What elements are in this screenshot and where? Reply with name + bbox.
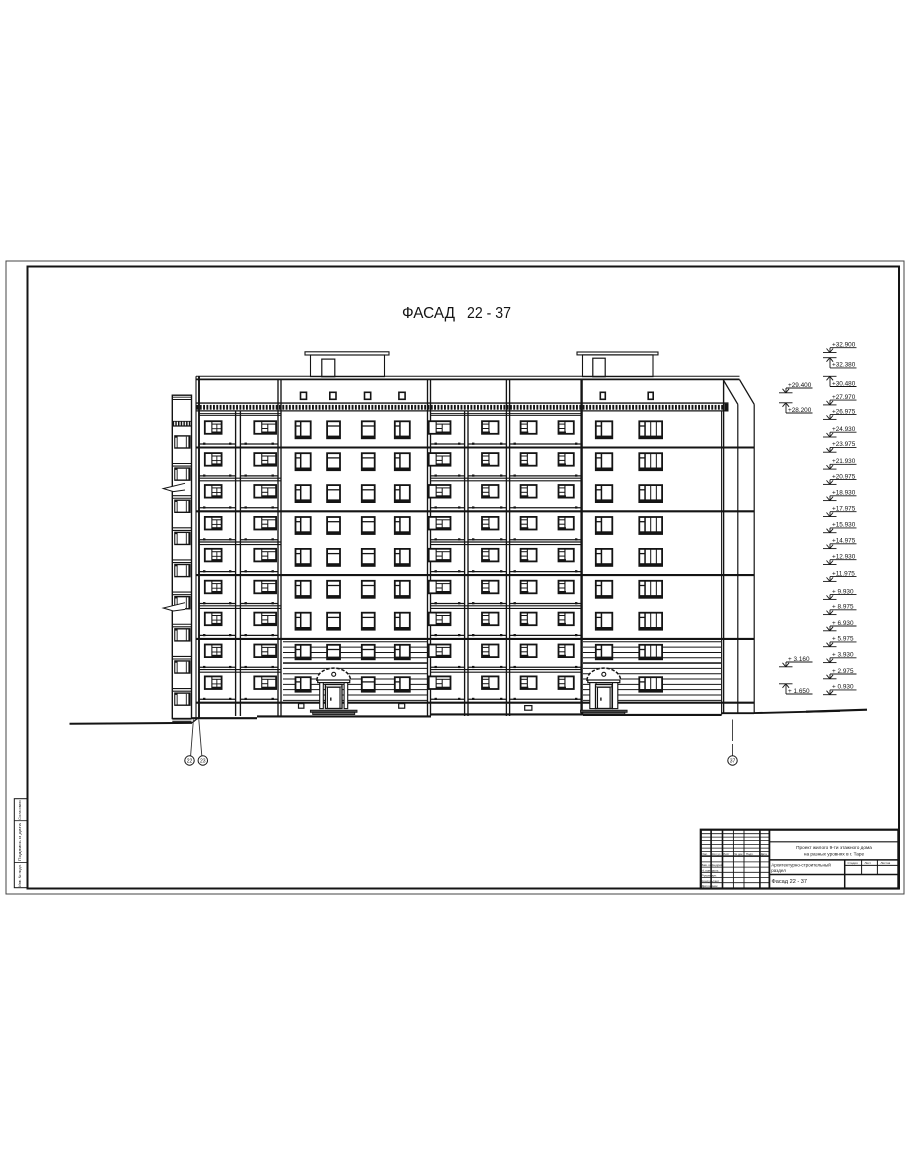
svg-text:22: 22 (187, 759, 193, 765)
svg-text:Листов: Листов (881, 861, 891, 865)
svg-text:37: 37 (730, 759, 736, 765)
svg-text:Н. контроль: Н. контроль (702, 868, 719, 872)
svg-text:+11.975: +11.975 (832, 570, 855, 577)
svg-text:Кол.уч: Кол.уч (712, 852, 721, 856)
svg-text:Фасад 22 - 37: Фасад 22 - 37 (772, 879, 808, 885)
svg-text:№ док.: № док. (734, 852, 743, 856)
svg-text:Руководит.: Руководит. (702, 874, 718, 878)
svg-text:Стадия: Стадия (848, 861, 859, 865)
svg-text:Проект жилого 9-ти этажного до: Проект жилого 9-ти этажного дома (796, 845, 872, 850)
svg-text:23: 23 (200, 759, 206, 765)
svg-text:+ 0.930: + 0.930 (832, 684, 854, 691)
svg-text:+ 3.930: + 3.930 (832, 652, 854, 659)
svg-text:+12.930: +12.930 (832, 554, 856, 561)
svg-text:Дипломник: Дипломник (702, 884, 719, 888)
svg-text:+14.975: +14.975 (832, 538, 856, 545)
svg-text:+27.970: +27.970 (832, 394, 856, 401)
svg-text:+23.975: +23.975 (832, 441, 856, 448)
svg-text:Зав. кафедрой: Зав. кафедрой (702, 863, 724, 867)
svg-text:Лист: Лист (723, 852, 730, 856)
svg-text:+ 6.930: + 6.930 (832, 620, 854, 627)
svg-text:Архитектурно-строительный: Архитектурно-строительный (771, 862, 831, 868)
svg-text:22 - 37: 22 - 37 (467, 305, 511, 322)
svg-text:+26.975: +26.975 (832, 408, 856, 415)
svg-text:+15.930: +15.930 (832, 522, 856, 529)
svg-text:+ 5.975: + 5.975 (832, 636, 854, 643)
svg-text:+32.380: +32.380 (832, 362, 856, 369)
svg-text:ФАСАД: ФАСАД (402, 305, 455, 322)
svg-text:+18.930: +18.930 (832, 490, 856, 497)
svg-text:Изм.: Изм. (702, 852, 708, 856)
svg-text:+32.900: +32.900 (832, 342, 856, 349)
svg-text:+ 8.975: + 8.975 (832, 604, 854, 611)
svg-text:+29.400: +29.400 (788, 382, 812, 389)
svg-text:Подпись и дата: Подпись и дата (18, 823, 22, 861)
svg-text:+ 1.650: + 1.650 (788, 688, 810, 695)
svg-text:+20.975: +20.975 (832, 473, 856, 480)
svg-text:Консультант: Консультант (702, 879, 720, 883)
svg-text:Согласовано: Согласовано (18, 800, 22, 820)
svg-text:+17.975: +17.975 (832, 506, 856, 513)
svg-text:Лист: Лист (865, 861, 872, 865)
svg-text:+ 3.160: + 3.160 (788, 656, 810, 663)
svg-text:+21.930: +21.930 (832, 458, 856, 465)
svg-text:Подп.: Подп. (746, 852, 754, 856)
svg-text:+ 2.975: + 2.975 (832, 668, 854, 675)
svg-text:Инв. № подл.: Инв. № подл. (18, 864, 22, 887)
svg-text:раздел: раздел (771, 868, 786, 873)
svg-text:+24.930: +24.930 (832, 426, 856, 433)
svg-text:Дата: Дата (761, 852, 768, 856)
svg-text:+ 9.930: + 9.930 (832, 588, 854, 595)
svg-text:на разных уровнях в г. Таре: на разных уровнях в г. Таре (804, 851, 865, 856)
svg-text:+30.480: +30.480 (832, 380, 856, 387)
svg-text:+28.200: +28.200 (788, 407, 812, 414)
